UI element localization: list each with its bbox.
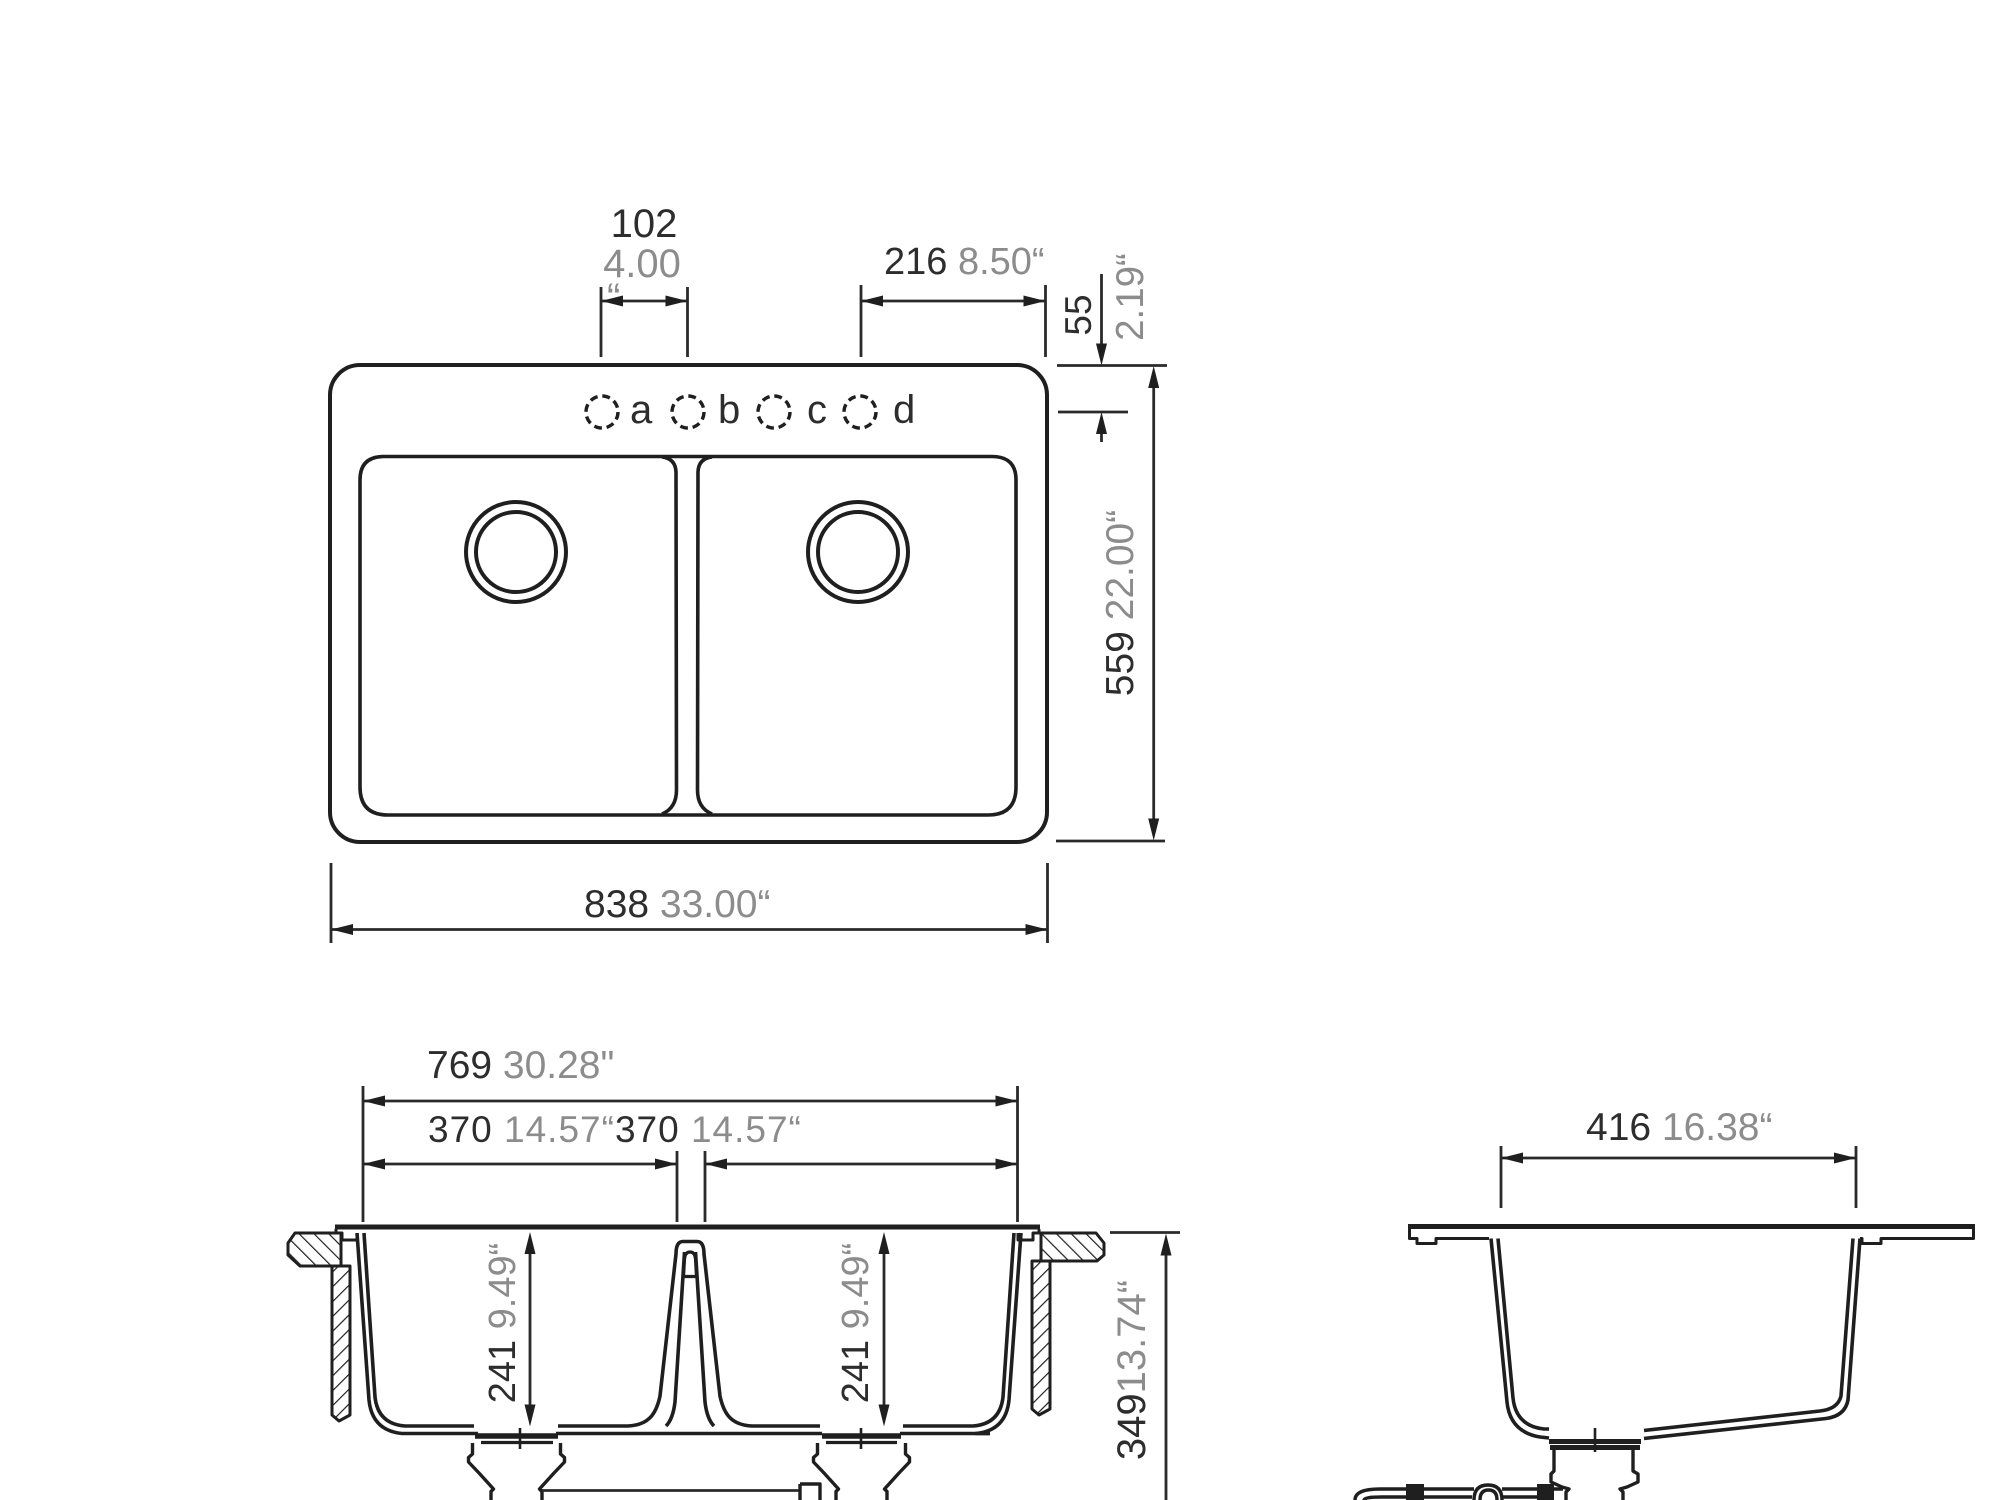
svg-text:102: 102	[611, 202, 678, 246]
svg-text:769 30.28": 769 30.28"	[427, 1044, 614, 1087]
svg-text:a: a	[630, 388, 653, 432]
svg-text:241 9.49“: 241 9.49“	[835, 1243, 877, 1404]
svg-text:241 9.49“: 241 9.49“	[482, 1243, 524, 1404]
svg-text:416 16.38“: 416 16.38“	[1586, 1106, 1773, 1149]
svg-text:“: “	[607, 276, 620, 320]
svg-text:55: 55	[1058, 294, 1099, 335]
svg-text:216 8.50“: 216 8.50“	[884, 241, 1045, 283]
svg-text:d: d	[893, 388, 915, 432]
svg-text:559 22.00“: 559 22.00“	[1099, 510, 1142, 697]
svg-text:370 14.57“370 14.57“: 370 14.57“370 14.57“	[428, 1109, 802, 1150]
svg-text:2.19“: 2.19“	[1109, 253, 1152, 341]
svg-text:c: c	[807, 388, 827, 432]
svg-text:838 33.00“: 838 33.00“	[584, 883, 771, 926]
svg-text:b: b	[718, 388, 740, 432]
svg-text:34913.74“: 34913.74“	[1110, 1280, 1154, 1460]
